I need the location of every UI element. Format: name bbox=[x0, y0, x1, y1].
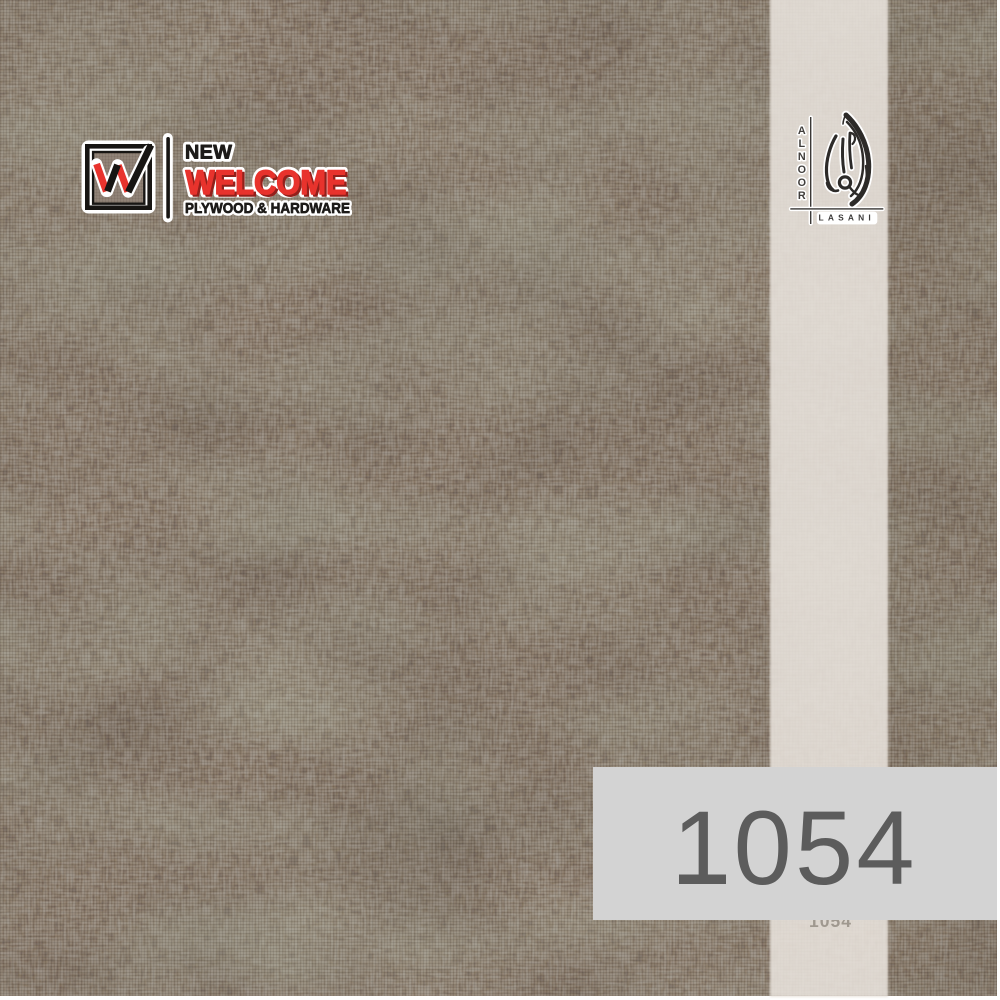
svg-text:LASANI: LASANI bbox=[819, 213, 875, 223]
svg-text:PLYWOOD & HARDWARE: PLYWOOD & HARDWARE bbox=[185, 201, 350, 217]
svg-text:NEW: NEW bbox=[185, 141, 232, 163]
svg-text:L: L bbox=[798, 138, 805, 150]
svg-text:O: O bbox=[798, 164, 806, 176]
svg-text:R: R bbox=[798, 190, 806, 202]
svg-text:WELCOME: WELCOME bbox=[186, 164, 347, 202]
svg-text:O: O bbox=[798, 177, 806, 189]
svg-text:1054: 1054 bbox=[672, 790, 917, 907]
svg-text:A: A bbox=[798, 125, 806, 137]
svg-text:N: N bbox=[798, 151, 806, 163]
